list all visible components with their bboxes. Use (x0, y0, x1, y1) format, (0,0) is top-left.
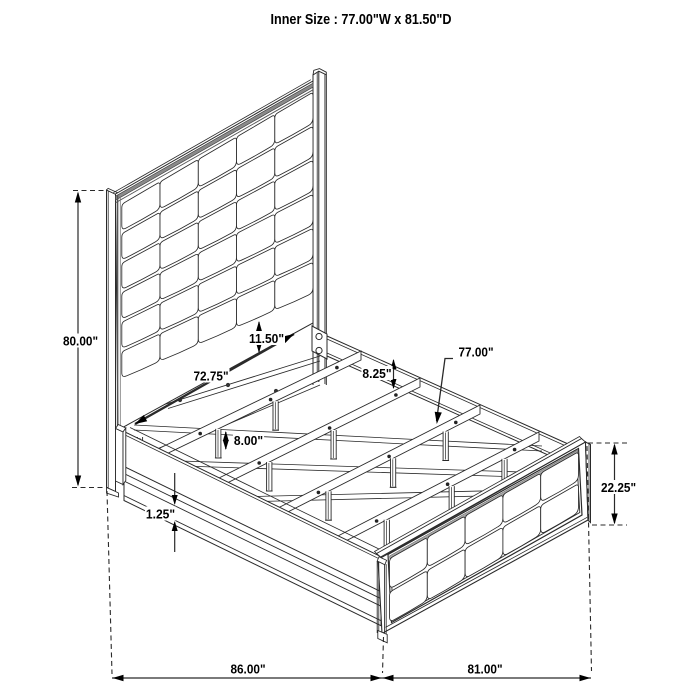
svg-text:72.75": 72.75" (193, 370, 228, 384)
svg-text:Inner Size : 77.00"W x 81.50"D: Inner Size : 77.00"W x 81.50"D (271, 12, 452, 28)
svg-text:8.25": 8.25" (362, 367, 391, 381)
svg-text:1.25": 1.25" (146, 508, 175, 522)
svg-text:81.00": 81.00" (467, 663, 502, 677)
svg-text:86.00": 86.00" (230, 663, 265, 677)
svg-text:80.00": 80.00" (63, 335, 98, 349)
svg-text:11.50": 11.50" (249, 332, 284, 346)
svg-text:22.25": 22.25" (601, 481, 636, 495)
svg-text:8.00": 8.00" (234, 434, 263, 448)
svg-text:77.00": 77.00" (458, 346, 493, 360)
